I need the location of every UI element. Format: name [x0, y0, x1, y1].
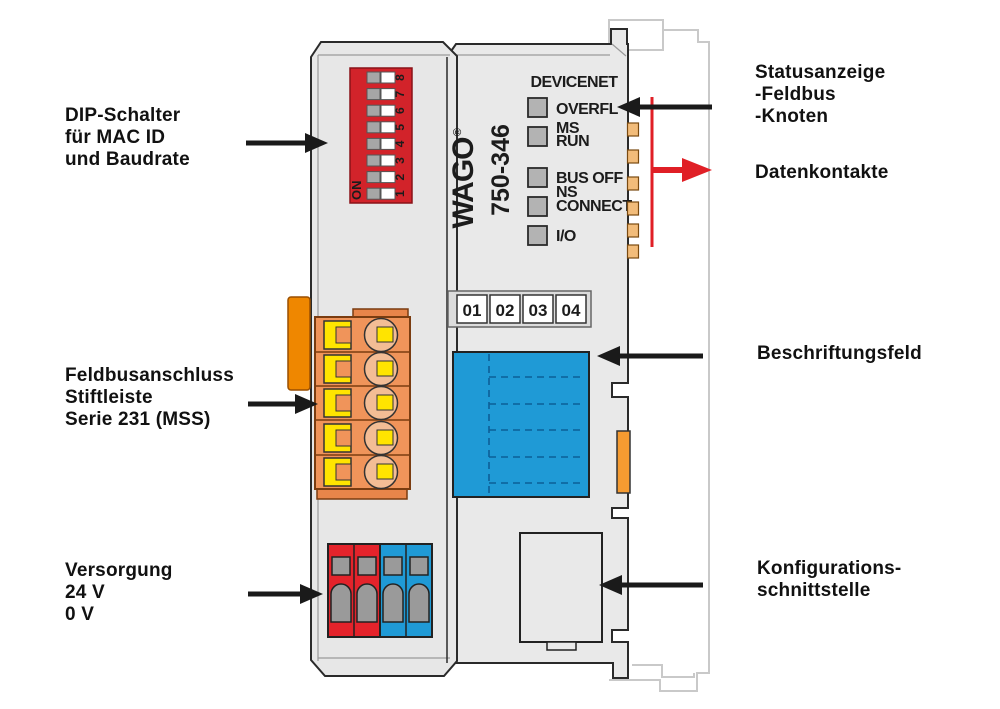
callout-line: Serie 231 (MSS)	[65, 409, 234, 431]
data-contacts	[628, 123, 639, 258]
data-contact-indicator	[652, 97, 712, 247]
clamp-opening[interactable]	[358, 557, 376, 575]
dip-number-7: 7	[393, 90, 407, 97]
data-contact	[628, 245, 639, 258]
wire-entry[interactable]	[357, 584, 377, 622]
callout-data-contacts-label: Datenkontakte	[755, 162, 889, 184]
power-supply-block	[328, 544, 432, 637]
callout-config-interface-label: Konfigurations- schnittstelle	[757, 558, 901, 602]
led-label-io: I/O	[556, 228, 576, 245]
config-cover-tab[interactable]	[547, 642, 576, 650]
dip-row-3[interactable]	[367, 155, 395, 166]
callout-line: Konfigurations-	[757, 558, 901, 580]
wire-entry[interactable]	[331, 584, 351, 622]
callout-line: Beschriftungsfeld	[757, 343, 922, 365]
clamp-opening[interactable]	[332, 557, 350, 575]
unlocking-latch[interactable]	[617, 431, 630, 493]
callout-line: 0 V	[65, 604, 173, 626]
slot-number-01: 01	[463, 301, 482, 320]
labeling-field	[453, 352, 589, 497]
callout-line: Datenkontakte	[755, 162, 889, 184]
dip-number-2: 2	[393, 173, 407, 180]
callout-line: Statusanzeige	[755, 62, 885, 84]
led-label-overfl: OVERFL	[556, 101, 619, 118]
slot-number-04: 04	[562, 301, 581, 320]
callout-line: 24 V	[65, 582, 173, 604]
slot-number-strip: 01 02 03 04	[448, 291, 591, 327]
callout-line: Versorgung	[65, 560, 173, 582]
led-label-connect: CONNECT	[556, 198, 632, 215]
callout-line: Stiftleiste	[65, 387, 234, 409]
dip-number-1: 1	[393, 190, 407, 197]
dip-row-4[interactable]	[367, 138, 395, 149]
led-ns-connect	[528, 197, 547, 216]
wire-entry[interactable]	[383, 584, 403, 622]
data-contact	[628, 202, 639, 215]
clamp-opening[interactable]	[384, 557, 402, 575]
ghost-bottom-step	[632, 665, 694, 677]
dip-number-3: 3	[393, 157, 407, 164]
slot-number-03: 03	[529, 301, 548, 320]
configuration-interface	[520, 533, 602, 650]
led-label-run: RUN	[556, 133, 589, 150]
clamp-opening[interactable]	[410, 557, 428, 575]
dip-number-4: 4	[393, 140, 407, 147]
callout-line: DIP-Schalter	[65, 105, 190, 127]
callout-line: und Baudrate	[65, 149, 190, 171]
ghost-top-step	[628, 31, 663, 50]
dip-number-8: 8	[393, 74, 407, 81]
callout-line: Feldbusanschluss	[65, 365, 234, 387]
dip-row-2[interactable]	[367, 172, 395, 183]
model-number: 750-346	[487, 124, 515, 216]
indicator-arrow-shaft	[652, 167, 684, 173]
dip-row-8[interactable]	[367, 72, 395, 83]
dip-on-label: ON	[349, 181, 364, 201]
labeling-field-area	[453, 352, 589, 497]
callout-line: für MAC ID	[65, 127, 190, 149]
arrow-fieldbus-connector	[248, 394, 318, 414]
callout-status-label: Statusanzeige -Feldbus -Knoten	[755, 62, 885, 128]
callout-fieldbus-label: Feldbusanschluss Stiftleiste Serie 231 (…	[65, 365, 234, 431]
dip-row-1[interactable]	[367, 188, 395, 199]
fieldbus-title: DEVICENET	[530, 74, 618, 91]
diagram-canvas: 8 7 6 5 4 3 2 1 ON WAGO ® 750-346 DEVICE…	[0, 0, 1000, 709]
dip-row-7[interactable]	[367, 89, 395, 100]
callout-line: schnittstelle	[757, 580, 901, 602]
callout-line: -Feldbus	[755, 84, 885, 106]
side-latch-left[interactable]	[288, 297, 310, 390]
dip-number-5: 5	[393, 124, 407, 131]
arrow-status-leds	[617, 97, 712, 117]
callout-line: -Knoten	[755, 106, 885, 128]
led-ms-run	[528, 127, 547, 146]
callout-power-label: Versorgung 24 V 0 V	[65, 560, 173, 626]
dip-number-6: 6	[393, 107, 407, 114]
fieldbus-connector	[288, 297, 410, 499]
slot-number-02: 02	[496, 301, 515, 320]
data-contact	[628, 177, 639, 190]
dip-row-6[interactable]	[367, 105, 395, 116]
wire-entry[interactable]	[409, 584, 429, 622]
callout-labeling-field-label: Beschriftungsfeld	[757, 343, 922, 365]
data-contact	[628, 224, 639, 237]
config-cover[interactable]	[520, 533, 602, 642]
led-overfl	[528, 98, 547, 117]
registered-mark: ®	[452, 128, 464, 136]
indicator-arrow-head	[682, 158, 712, 182]
wago-logo: WAGO	[447, 137, 480, 229]
dip-switch-block: 8 7 6 5 4 3 2 1 ON	[349, 68, 412, 203]
data-contact	[628, 150, 639, 163]
data-contact	[628, 123, 639, 136]
led-bus-off	[528, 168, 547, 187]
led-io	[528, 226, 547, 245]
callout-dip-label: DIP-Schalter für MAC ID und Baudrate	[65, 105, 190, 171]
dip-row-5[interactable]	[367, 122, 395, 133]
